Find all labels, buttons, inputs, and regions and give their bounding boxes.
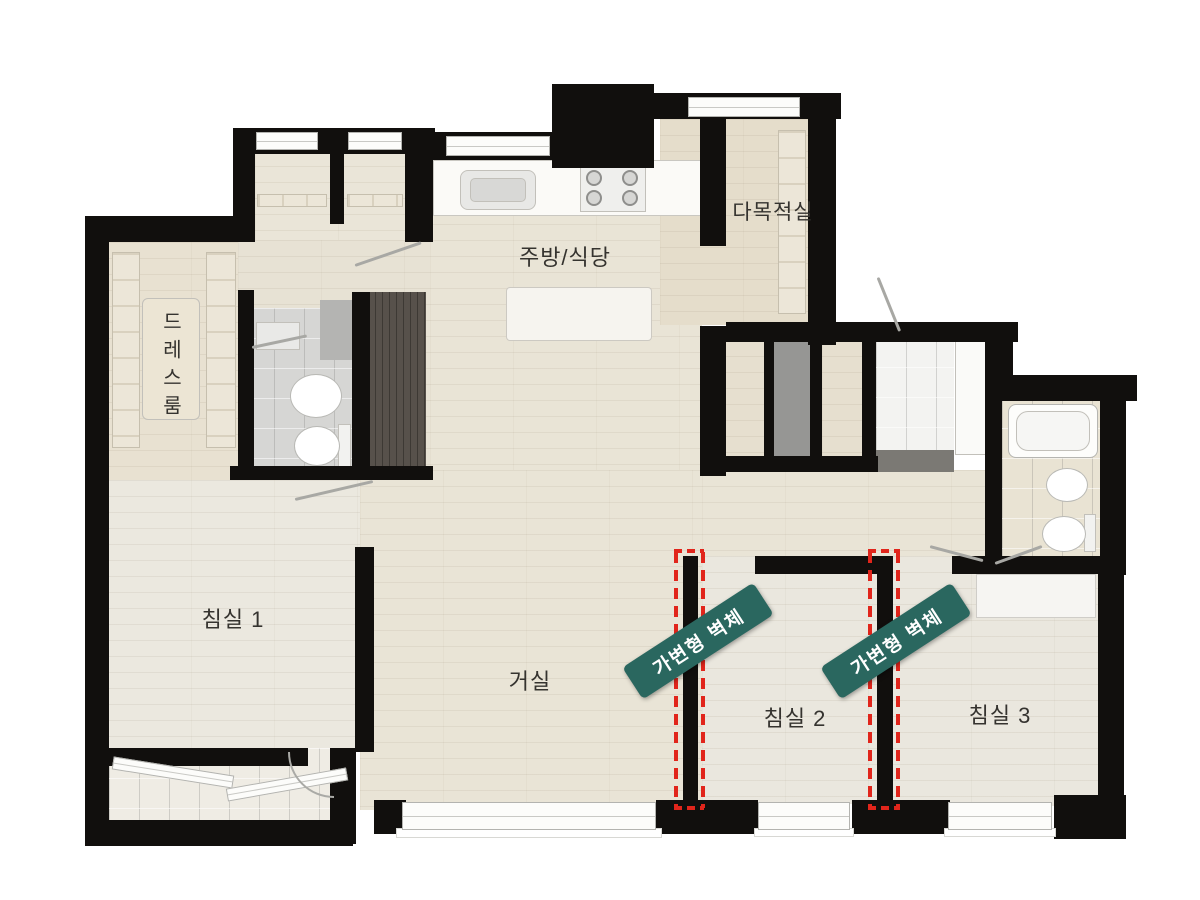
room-label-bedroom1: 침실 1: [158, 602, 308, 634]
kitchen-sink-basin: [470, 178, 526, 202]
window: [446, 136, 550, 156]
wall-segment: [726, 322, 1018, 342]
wall-segment: [1100, 375, 1126, 575]
bathtub-inner: [1016, 411, 1090, 451]
floor-shower-room: [876, 337, 954, 455]
kitchen-island: [506, 287, 652, 341]
wall-segment: [230, 466, 433, 480]
wall-segment: [700, 326, 726, 476]
wall-segment: [85, 216, 109, 750]
floor-plan-canvas: 가변형 벽체 가변형 벽체 주방/식당 다목적실 드레스룸 침실 1 거실 침실…: [0, 0, 1200, 900]
window: [688, 97, 800, 117]
bathroom-left-toilet-fixture: [294, 426, 340, 466]
wall-segment: [1054, 795, 1126, 839]
wall-segment: [764, 340, 774, 456]
wall-segment: [985, 398, 1002, 570]
wall-segment: [862, 340, 876, 456]
movable-wall-2-dash-right: [896, 552, 900, 808]
shower-marble-strip: [876, 450, 954, 472]
dressroom-wardrobe-right: [206, 252, 236, 448]
wall-segment: [355, 547, 374, 752]
stove-burner-icon: [622, 190, 638, 206]
room-label-bedroom2: 침실 2: [725, 701, 865, 733]
wall-segment: [233, 128, 255, 226]
movable-wall-1-dash-top: [674, 549, 704, 553]
dressroom-wardrobe-left: [112, 252, 140, 448]
movable-wall-1-bar: [683, 556, 698, 806]
window: [256, 132, 318, 150]
wall-segment: [852, 800, 950, 834]
wall-segment: [755, 556, 883, 574]
wall-segment: [700, 456, 878, 472]
entry-shoe-shelf: [347, 194, 403, 207]
dark-closet: [368, 292, 426, 470]
wall-segment: [238, 290, 254, 480]
shower-box: [320, 300, 354, 360]
room-label-multipurpose: 다목적실: [698, 196, 848, 226]
room-label-bedroom3: 침실 3: [930, 698, 1070, 730]
utility-gray-panel: [772, 340, 810, 456]
wall-segment: [810, 340, 822, 456]
window: [348, 132, 402, 150]
movable-wall-1-dash-bottom: [674, 806, 704, 810]
movable-wall-1-dash-right: [701, 552, 705, 808]
wall-segment: [1098, 560, 1124, 812]
utility-door-panel: [955, 333, 987, 455]
wall-segment: [656, 800, 758, 834]
stove-burner-icon: [622, 170, 638, 186]
wall-segment: [85, 820, 353, 846]
wall-segment: [700, 118, 726, 246]
floor-utility-closet-a: [722, 340, 764, 456]
bathroom-right-toilet-fixture: [1042, 516, 1086, 552]
bathroom-left-basin-fixture: [290, 374, 342, 418]
wall-segment: [552, 84, 654, 168]
movable-wall-1-dash-left: [674, 552, 678, 808]
window: [758, 802, 850, 830]
bedroom3-wardrobe: [976, 574, 1096, 618]
room-label-kitchen-dining: 주방/식당: [475, 240, 655, 272]
stove-burner-icon: [586, 190, 602, 206]
movable-wall-2-bar: [877, 556, 893, 806]
window: [402, 802, 656, 830]
room-label-dressroom: 드레스룸: [156, 292, 185, 442]
stove-burner-icon: [586, 170, 602, 186]
floor-living: [360, 470, 702, 810]
window: [948, 802, 1052, 830]
floor-utility-closet-b: [822, 340, 862, 456]
bathroom-right-basin-fixture: [1046, 468, 1088, 502]
wall-segment: [352, 292, 370, 480]
wall-segment: [85, 216, 255, 242]
entry-shoe-shelf: [257, 194, 327, 207]
wall-segment: [330, 128, 344, 224]
movable-wall-2-dash-bottom: [868, 806, 900, 810]
room-label-living: 거실: [470, 664, 590, 696]
